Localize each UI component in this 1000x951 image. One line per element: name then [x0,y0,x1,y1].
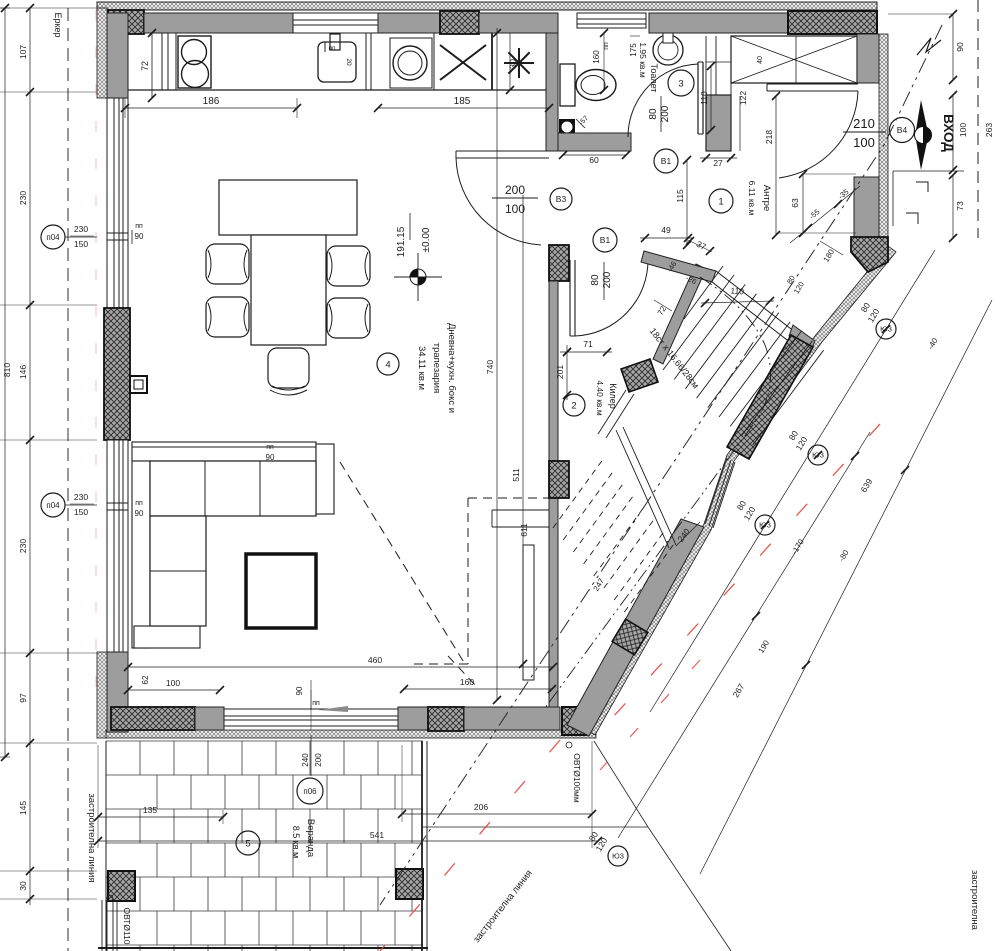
svg-text:90: 90 [295,686,304,695]
svg-text:200: 200 [314,753,323,767]
svg-text:218: 218 [764,130,774,144]
svg-text:пп: пп [266,444,274,451]
svg-text:1.95 кв.м: 1.95 кв.м [638,42,648,78]
svg-text:810: 810 [2,363,12,377]
svg-text:3: 3 [678,78,683,89]
svg-text:пп: пп [312,700,320,707]
svg-text:160: 160 [592,50,601,64]
svg-text:206: 206 [474,802,488,812]
svg-text:2: 2 [571,400,576,411]
svg-text:511: 511 [511,468,521,482]
svg-text:146: 146 [18,365,28,379]
svg-text:Ю3: Ю3 [759,521,771,530]
svg-text:150: 150 [74,239,88,249]
svg-text:застроителна: застроителна [969,870,980,931]
svg-text:541: 541 [370,830,384,840]
svg-text:110: 110 [699,91,709,105]
svg-text:Веранда: Веранда [305,819,316,858]
svg-text:Антре: Антре [761,185,772,212]
svg-text:4.40 кв.м: 4.40 кв.м [595,380,605,416]
svg-text:122: 122 [738,91,748,105]
svg-text:90: 90 [266,453,275,462]
svg-text:90: 90 [135,232,144,241]
svg-text:8.5 кв.м: 8.5 кв.м [291,826,301,858]
svg-text:30: 30 [508,59,518,69]
svg-text:Дневна+кухн. бокс и: Дневна+кухн. бокс и [446,323,457,413]
svg-text:34.11 кв.м: 34.11 кв.м [416,346,427,390]
svg-text:740: 740 [485,360,495,374]
svg-text:80: 80 [590,274,601,286]
svg-text:240: 240 [301,753,310,767]
svg-text:185: 185 [454,96,471,107]
svg-text:40: 40 [757,56,764,64]
svg-text:Ю3: Ю3 [612,852,624,861]
svg-text:160: 160 [460,677,474,687]
svg-text:150: 150 [74,507,88,517]
svg-text:ОВТØ110: ОВТØ110 [122,907,132,944]
svg-text:115: 115 [675,189,685,203]
svg-text:1: 1 [718,196,723,207]
svg-text:200: 200 [660,105,671,122]
svg-text:Ю3: Ю3 [812,451,824,460]
svg-text:30: 30 [18,881,28,891]
svg-text:п04: п04 [46,501,60,510]
svg-text:ВХОД: ВХОД [941,114,956,152]
svg-text:71: 71 [583,339,593,349]
svg-text:Еркер: Еркер [53,12,63,37]
svg-text:100: 100 [505,202,525,216]
svg-text:80: 80 [648,108,659,120]
svg-text:110: 110 [730,285,745,296]
svg-text:27: 27 [713,158,723,168]
svg-text:застроителна линия: застроителна линия [86,793,97,882]
svg-text:п04: п04 [46,233,60,242]
svg-text:230: 230 [18,191,28,205]
svg-text:В4: В4 [897,125,908,135]
svg-text:100: 100 [853,135,875,150]
svg-text:200: 200 [505,183,525,197]
svg-text:п06: п06 [303,787,317,796]
svg-text:263: 263 [984,123,994,137]
svg-text:пп: пп [135,223,143,230]
svg-text:6.11 кв.м: 6.11 кв.м [747,181,757,216]
svg-text:В1: В1 [661,156,672,166]
svg-text:90: 90 [135,509,144,518]
svg-text:230: 230 [18,539,28,553]
svg-text:201: 201 [555,365,565,379]
svg-text:5: 5 [245,838,250,849]
svg-text:90: 90 [955,42,965,52]
svg-text:97: 97 [18,693,28,703]
svg-text:210: 210 [853,116,875,131]
svg-text:пп: пп [328,45,336,52]
svg-text:В3: В3 [556,194,567,204]
svg-text:175: 175 [629,43,638,57]
svg-text:ОВТØ100мм: ОВТØ100мм [572,753,582,803]
svg-text:186: 186 [203,96,220,107]
svg-text:72: 72 [140,61,150,71]
svg-text:73: 73 [955,201,965,211]
svg-text:4: 4 [385,359,390,370]
svg-text:230: 230 [74,492,88,502]
svg-text:пп: пп [135,500,143,507]
svg-text:20: 20 [345,58,352,66]
svg-text:107: 107 [18,45,28,59]
svg-text:100: 100 [958,123,968,137]
svg-text:63: 63 [790,198,800,208]
svg-text:60: 60 [589,155,599,165]
svg-text:460: 460 [368,655,382,665]
svg-text:145: 145 [18,801,28,815]
svg-text:Ю3: Ю3 [880,325,892,334]
svg-text:трапезария: трапезария [431,343,442,394]
svg-text:В1: В1 [600,235,611,245]
svg-text:191.15: 191.15 [396,226,407,257]
svg-text:100: 100 [166,678,180,688]
svg-text:135: 135 [143,805,157,815]
svg-text:49: 49 [661,225,671,235]
svg-text:611: 611 [519,523,529,537]
svg-text:±0.00: ±0.00 [421,227,432,252]
svg-text:230: 230 [74,224,88,234]
svg-text:62: 62 [141,675,150,684]
